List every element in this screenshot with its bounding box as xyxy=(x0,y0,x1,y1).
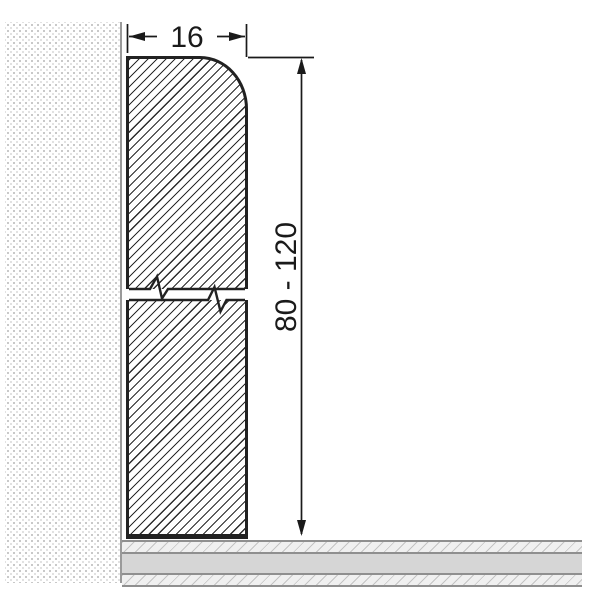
skirting-profile-lower-section xyxy=(126,300,248,539)
floor-bottom-line xyxy=(122,585,582,587)
width-dimension-label: 16 xyxy=(157,22,217,56)
profile-break-gap xyxy=(125,289,249,300)
technical-drawing: 16 80 - 120 xyxy=(0,0,604,604)
skirting-profile xyxy=(126,56,248,539)
wall-edge-line xyxy=(120,22,122,583)
floor-top-covering-layer xyxy=(122,542,582,552)
height-dimension-label: 80 - 120 xyxy=(272,197,302,357)
width-arrowhead-left xyxy=(129,32,145,41)
height-arrowhead-top xyxy=(297,58,306,74)
width-arrowhead-right xyxy=(229,32,245,41)
skirting-profile-upper-section xyxy=(126,56,248,289)
floor-bottom-covering-layer xyxy=(122,575,582,585)
floor-structure xyxy=(122,540,582,587)
height-arrowhead-bottom xyxy=(297,520,306,536)
wall-surface xyxy=(5,22,120,583)
floor-core-layer xyxy=(122,554,582,573)
